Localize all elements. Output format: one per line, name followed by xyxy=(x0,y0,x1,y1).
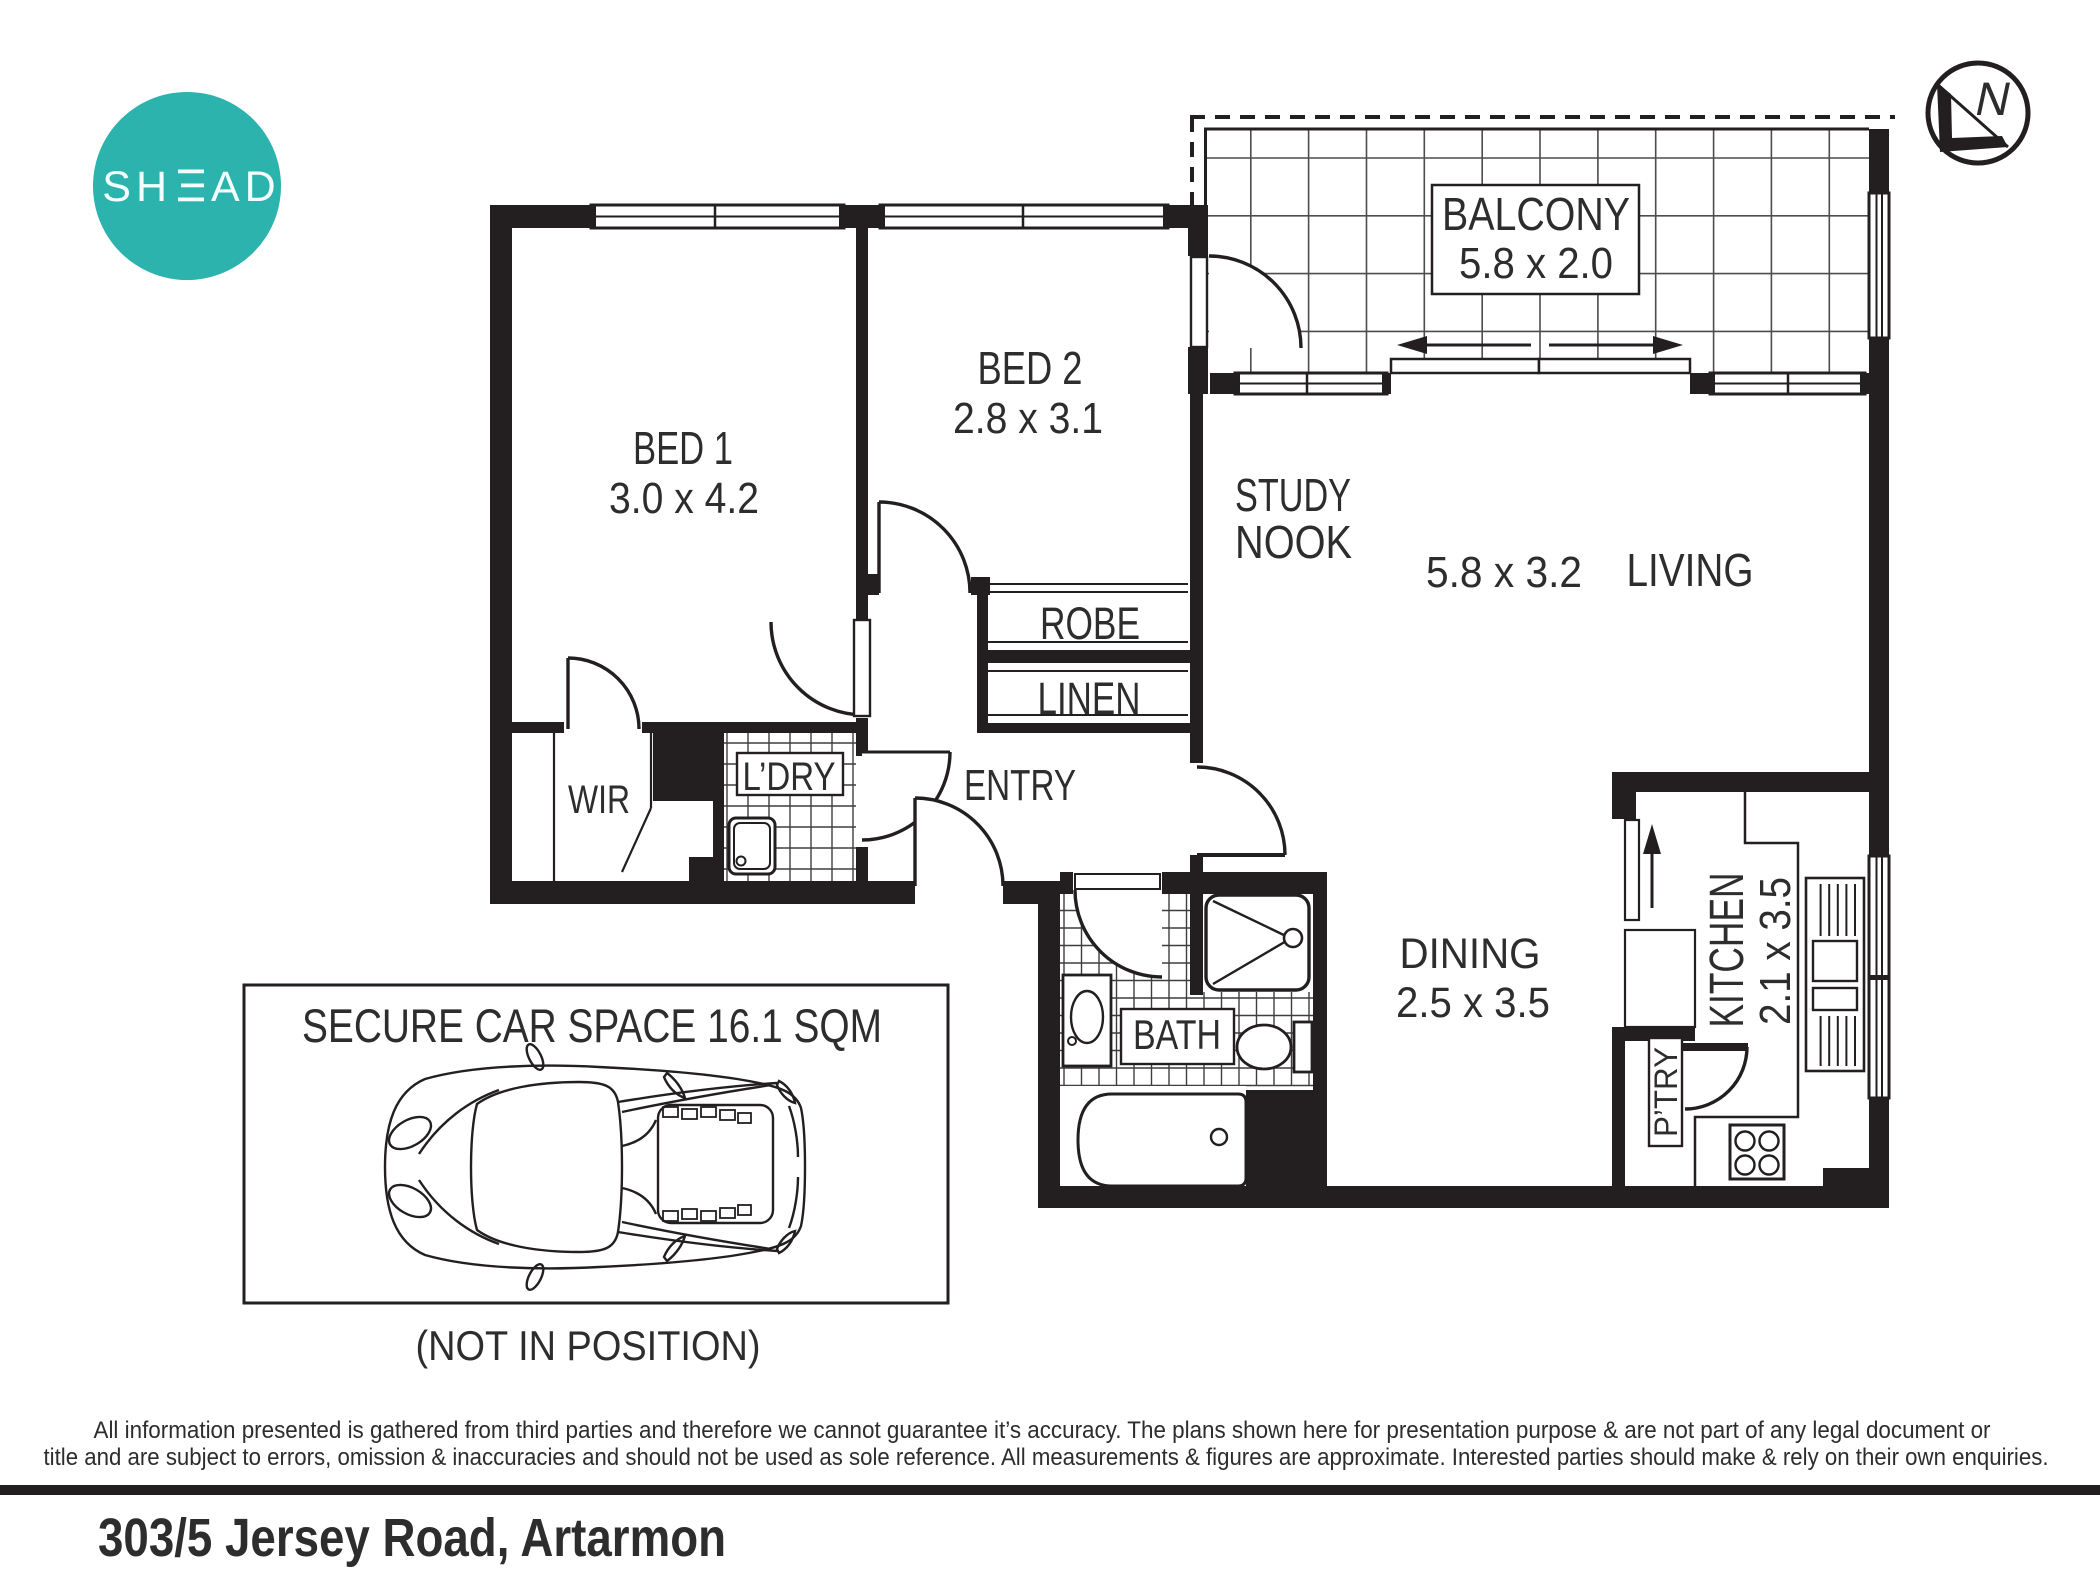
svg-text:L’DRY: L’DRY xyxy=(743,755,836,799)
svg-text:2.1 x 3.5: 2.1 x 3.5 xyxy=(1751,877,1800,1025)
svg-text:All information presented is g: All information presented is gathered fr… xyxy=(94,1417,1991,1444)
svg-text:ROBE: ROBE xyxy=(1040,598,1140,649)
svg-text:WIR: WIR xyxy=(568,778,630,822)
svg-text:SECURE CAR SPACE 16.1 SQM: SECURE CAR SPACE 16.1 SQM xyxy=(302,999,882,1052)
svg-text:title and are subject to error: title and are subject to errors, omissio… xyxy=(44,1444,2049,1471)
svg-text:5.8 x 3.2: 5.8 x 3.2 xyxy=(1426,548,1582,597)
svg-text:BED 1: BED 1 xyxy=(633,422,733,474)
svg-text:BALCONY: BALCONY xyxy=(1442,188,1630,240)
svg-text:2.8 x 3.1: 2.8 x 3.1 xyxy=(953,394,1103,443)
svg-text:2.5 x 3.5: 2.5 x 3.5 xyxy=(1396,979,1550,1027)
svg-text:LIVING: LIVING xyxy=(1627,544,1754,596)
svg-text:5.8 x 2.0: 5.8 x 2.0 xyxy=(1459,239,1613,288)
svg-text:3.0 x 4.2: 3.0 x 4.2 xyxy=(609,474,759,523)
svg-text:303/5 Jersey Road, Artarmon: 303/5 Jersey Road, Artarmon xyxy=(98,1508,726,1568)
svg-text:NOOK: NOOK xyxy=(1235,516,1352,568)
svg-text:BED 2: BED 2 xyxy=(978,342,1083,394)
svg-text:(NOT IN POSITION): (NOT IN POSITION) xyxy=(416,1322,761,1369)
svg-text:ENTRY: ENTRY xyxy=(964,761,1076,810)
svg-text:STUDY: STUDY xyxy=(1235,469,1351,521)
svg-text:BATH: BATH xyxy=(1133,1011,1221,1058)
svg-text:SH: SH xyxy=(102,163,172,211)
svg-text:KITCHEN: KITCHEN xyxy=(1701,873,1754,1028)
svg-text:AD: AD xyxy=(211,163,281,211)
svg-text:DINING: DINING xyxy=(1400,930,1541,978)
svg-text:P’TRY: P’TRY xyxy=(1648,1047,1684,1137)
svg-text:LINEN: LINEN xyxy=(1038,673,1141,724)
